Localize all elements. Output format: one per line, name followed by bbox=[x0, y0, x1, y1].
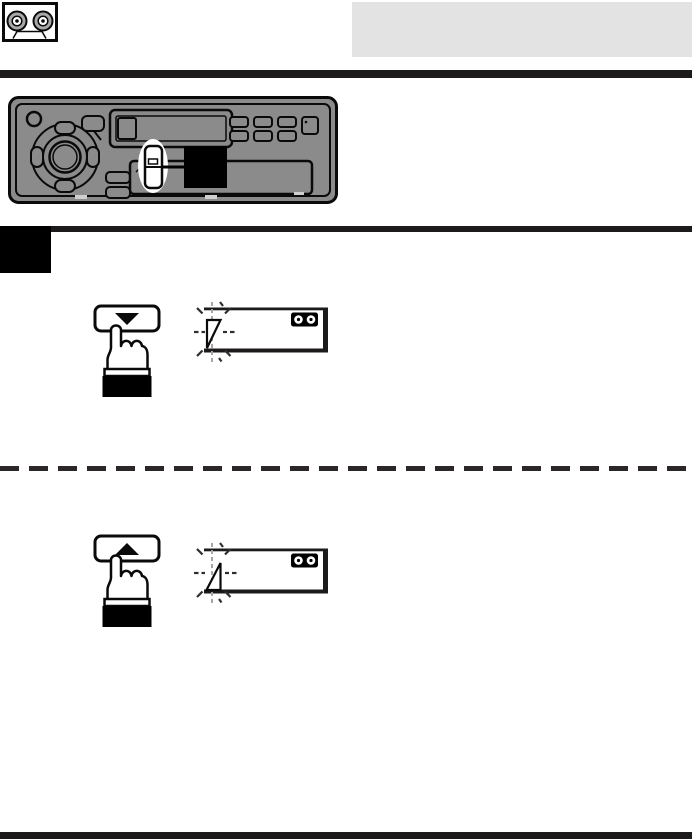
bottom-rule bbox=[0, 832, 692, 839]
preset-button-icon bbox=[106, 187, 130, 198]
press-up-button-illustration bbox=[90, 530, 165, 650]
cassette-door bbox=[110, 110, 232, 147]
preset-button-icon bbox=[106, 172, 130, 183]
press-down-button-illustration bbox=[90, 300, 165, 420]
display-readout-side-a bbox=[194, 299, 336, 365]
manual-page bbox=[0, 0, 692, 839]
source-button-icon bbox=[82, 116, 104, 131]
tape-direction-triangle-icon bbox=[207, 563, 221, 590]
section-title-box bbox=[352, 2, 692, 57]
callout-square bbox=[184, 146, 227, 188]
cassette-indicator-icon bbox=[291, 554, 318, 568]
tape-direction-triangle-icon bbox=[207, 320, 221, 348]
sleeve bbox=[103, 606, 152, 627]
tape-program-rocker-button bbox=[145, 146, 162, 188]
car-stereo-front-panel bbox=[8, 96, 338, 204]
top-rule bbox=[0, 70, 692, 78]
display-readout-side-b bbox=[194, 540, 336, 606]
step-rule bbox=[51, 226, 692, 232]
step-number-marker bbox=[0, 226, 51, 273]
cassette-tape-icon bbox=[2, 2, 58, 42]
faceplate-body bbox=[10, 98, 337, 203]
cassette-indicator-icon bbox=[291, 313, 318, 327]
sleeve bbox=[103, 376, 152, 397]
dashed-separator bbox=[0, 466, 692, 471]
eject-button-icon bbox=[302, 117, 318, 134]
